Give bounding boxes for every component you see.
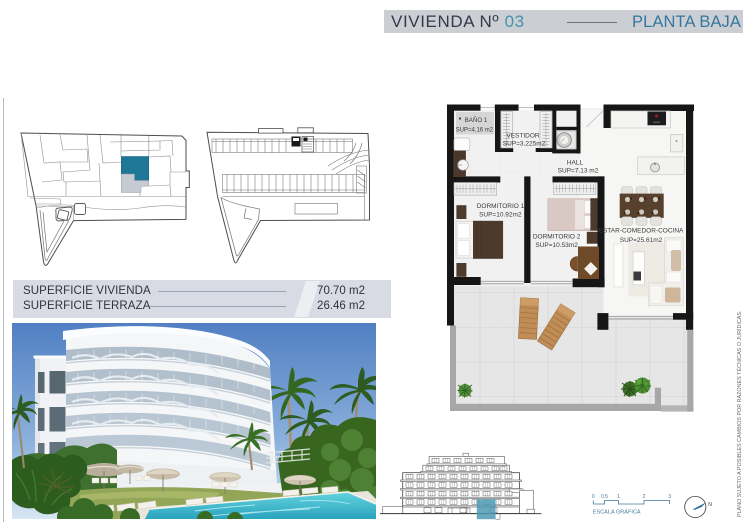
svg-text:SUP=7.13 m2: SUP=7.13 m2 [558,168,599,175]
svg-text:2: 2 [643,494,646,500]
svg-text:SUP=10.53m2: SUP=10.53m2 [535,242,578,249]
svg-text:N: N [708,502,712,508]
svg-text:0: 0 [592,494,595,500]
svg-text:HALL: HALL [567,160,584,167]
svg-text:DORMITORIO 1: DORMITORIO 1 [477,203,525,210]
svg-text:SUP=3.225m2: SUP=3.225m2 [503,140,546,147]
svg-text:ESTAR-COMEDOR-COCINA: ESTAR-COMEDOR-COCINA [599,228,684,235]
svg-text:SUP=25.61m2: SUP=25.61m2 [620,237,663,244]
svg-text:SUP=4.16 m2: SUP=4.16 m2 [456,127,494,133]
svg-text:ESCALA GRÁFICA: ESCALA GRÁFICA [593,509,641,516]
svg-text:0.5: 0.5 [601,494,608,500]
svg-text:1: 1 [617,494,620,500]
svg-text:SUP=10.92m2: SUP=10.92m2 [479,211,522,218]
svg-text:3: 3 [668,494,671,500]
svg-text:BAÑO 1: BAÑO 1 [465,117,488,124]
svg-text:DORMITORIO 2: DORMITORIO 2 [533,234,581,241]
svg-text:VESTIDOR: VESTIDOR [506,133,540,140]
